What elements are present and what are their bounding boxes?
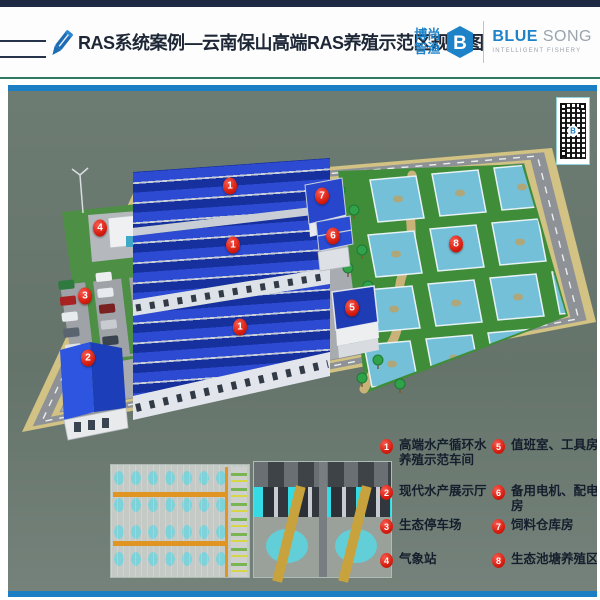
logo-english-name: BLUE SONG INTELLIGENT FISHERY xyxy=(492,29,592,54)
qr-finder-square xyxy=(560,103,567,110)
legend-label: 饲料仓库房 xyxy=(511,518,574,533)
corridor-line xyxy=(225,467,228,577)
center-divider xyxy=(319,462,327,577)
top-navy-bar xyxy=(0,0,600,7)
site-plan-3d-view: B 1112345678 1高端水产循环水养殖示范车间2现代水产展示厅3生态停车… xyxy=(8,91,597,591)
qr-center-logo: B xyxy=(568,126,579,137)
qr-finder-square xyxy=(560,150,567,157)
legend-label: 现代水产展示厅 xyxy=(399,484,487,499)
legend-label: 备用电机、配电房 xyxy=(511,484,597,514)
header: RAS系统案例—云南保山高端RAS养殖示范区规划图 博尚 智渔 B BLUE S… xyxy=(0,7,600,77)
legend-label: 高端水产循环水养殖示范车间 xyxy=(399,438,490,468)
legend-label: 生态停车场 xyxy=(399,518,462,533)
legend-number-badge: 8 xyxy=(492,553,505,568)
legend-number-badge: 2 xyxy=(380,485,393,500)
legend-item-4: 4气象站 xyxy=(380,552,490,586)
legend-number-badge: 7 xyxy=(492,519,505,534)
exhibition-hall xyxy=(60,342,128,440)
legend-item-8: 8生态池塘养殖区 xyxy=(492,552,597,586)
header-decor-line xyxy=(0,40,46,42)
inset-floorplan-view xyxy=(110,464,250,578)
legend-number-badge: 1 xyxy=(380,439,393,454)
legend-number-badge: 5 xyxy=(492,439,505,454)
legend-number-badge: 3 xyxy=(380,519,393,534)
qr-code: B xyxy=(556,97,590,165)
legend-label: 气象站 xyxy=(399,552,437,567)
inset-interior-view xyxy=(253,461,392,578)
corridor-band xyxy=(113,492,228,497)
corridor-band xyxy=(113,541,228,546)
pen-icon xyxy=(48,23,74,65)
legend-item-6: 6备用电机、配电房 xyxy=(492,484,597,518)
legend-item-5: 5值班室、工具房 xyxy=(492,438,597,484)
legend-item-3: 3生态停车场 xyxy=(380,518,490,552)
ras-workshops xyxy=(133,158,330,420)
plan-image-panel: B 1112345678 1高端水产循环水养殖示范车间2现代水产展示厅3生态停车… xyxy=(8,85,597,597)
panel-bottom-border xyxy=(8,591,597,597)
svg-text:B: B xyxy=(453,33,467,54)
logo-chinese-name: 博尚 智渔 xyxy=(414,28,440,57)
qr-finder-square xyxy=(579,103,586,110)
legend-number-badge: 4 xyxy=(380,553,393,568)
legend-item-7: 7饲料仓库房 xyxy=(492,518,597,552)
legend-number-badge: 6 xyxy=(492,485,505,500)
legend-item-1: 1高端水产循环水养殖示范车间 xyxy=(380,438,490,484)
logo-divider xyxy=(483,21,484,63)
logo-shield-icon: B xyxy=(445,25,475,59)
legend: 1高端水产循环水养殖示范车间2现代水产展示厅3生态停车场4气象站5值班室、工具房… xyxy=(380,438,597,586)
legend-label: 生态池塘养殖区 xyxy=(511,552,597,567)
header-decor-line xyxy=(0,56,46,58)
equipment-strip xyxy=(231,467,247,577)
header-underline xyxy=(0,77,600,79)
company-logo: 博尚 智渔 B BLUE SONG INTELLIGENT FISHERY xyxy=(414,7,592,77)
legend-label: 值班室、工具房 xyxy=(511,438,597,453)
legend-item-2: 2现代水产展示厅 xyxy=(380,484,490,518)
